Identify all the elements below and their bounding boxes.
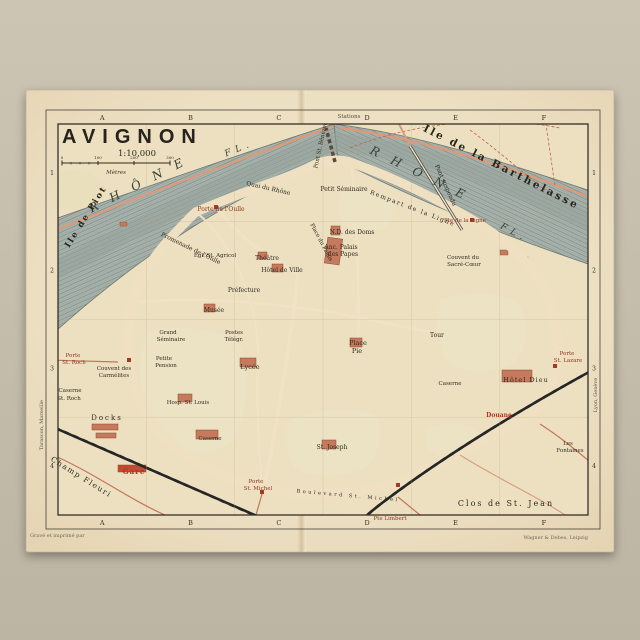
- map-label: Hôtel de Ville: [261, 267, 303, 274]
- map-label: Séminaire: [157, 336, 185, 343]
- map-label: Égl. St. Agricol: [194, 251, 237, 259]
- map-label: Caserne: [439, 381, 462, 387]
- map-label: Porte: [66, 353, 81, 359]
- grid-letter-top: F: [542, 114, 547, 122]
- map-canvas: AVIGNON 1:10,000 0100200300 Mètres R H Ô…: [0, 0, 640, 640]
- map-label: Place: [349, 339, 367, 347]
- grid-number-left: 3: [50, 365, 54, 372]
- map-label: Musée: [204, 307, 225, 314]
- map-label: Télégr.: [225, 336, 244, 343]
- map-label: N.D. des Doms: [330, 229, 375, 236]
- map-label: Lycée: [240, 363, 259, 371]
- map-title: AVIGNON: [62, 126, 203, 148]
- map-label: Couvent des: [97, 366, 132, 372]
- grid-number-right: 3: [592, 365, 596, 372]
- map-label: Pension: [155, 363, 177, 369]
- attribution-right: Wagner & Debes, Leipzig: [524, 535, 589, 541]
- grid-number-right: 2: [592, 268, 596, 275]
- grid-letter-bottom: C: [276, 519, 281, 527]
- map-label: Pie: [352, 347, 362, 355]
- map-label: Porte: [560, 351, 575, 357]
- map-label: Clos de St. Jean: [458, 499, 554, 508]
- map-label: Porte de l'Oulle: [197, 206, 245, 213]
- map-label: Petit Séminaire: [320, 186, 367, 193]
- map-label: Porte: [249, 479, 264, 485]
- map-label: Grand: [159, 330, 177, 336]
- grid-letter-top: A: [99, 114, 105, 122]
- grid-letter-bottom: F: [542, 519, 547, 527]
- grid-number-left: 2: [50, 268, 54, 275]
- attribution-left: Gravé et imprimé par: [30, 532, 85, 539]
- map-label: Couvent du: [447, 255, 479, 261]
- map-label: Tarascon, Marseille: [39, 400, 45, 450]
- grid-letter-bottom: A: [99, 519, 105, 527]
- grid-letter-bottom: D: [365, 519, 370, 527]
- map-label: Hosp. St. Louis: [167, 400, 210, 406]
- grid-letter-bottom: B: [188, 519, 193, 527]
- scale-tick: 100: [94, 155, 102, 160]
- map-label: Docks: [91, 414, 123, 422]
- grid-number-right: 1: [592, 170, 596, 177]
- map-label: Carmélites: [99, 372, 130, 379]
- map-label: Les: [563, 441, 573, 447]
- map-label: Gare: [123, 467, 146, 476]
- map-label: Petite: [156, 356, 172, 362]
- grid-letter-top: B: [188, 114, 193, 122]
- map-label: Pte de la Ligne: [444, 218, 486, 224]
- map-label: St. Joseph: [317, 444, 348, 451]
- map-label: St. Roch: [62, 360, 86, 366]
- map-label: St. Michel: [244, 486, 273, 492]
- map-label: Postes: [225, 330, 243, 336]
- scale-tick: 0: [61, 155, 64, 160]
- grid-letter-bottom: E: [453, 519, 458, 527]
- map-label: Sacré-Cœur: [447, 261, 481, 268]
- map-label: Tour: [430, 332, 444, 339]
- map-label: St. Roch: [57, 396, 81, 402]
- scale-unit-label: Mètres: [105, 169, 126, 176]
- scale-tick: 200: [130, 155, 138, 160]
- map-label: Fontaines: [556, 448, 583, 454]
- map-label: Hôtel Dieu: [503, 376, 549, 384]
- grid-letter-top: E: [453, 114, 458, 122]
- grid-number-left: 1: [50, 170, 54, 177]
- map-label: Caserne: [199, 436, 222, 442]
- grid-number-right: 4: [592, 463, 596, 470]
- map-label: Théâtre: [255, 255, 279, 262]
- map-label: Douane: [486, 412, 512, 419]
- photo-of-antique-map: AVIGNON 1:10,000 0100200300 Mètres R H Ô…: [0, 0, 640, 640]
- map-label: Préfecture: [228, 287, 261, 294]
- grid-number-left: 4: [50, 463, 54, 470]
- map-label: St. Lazare: [554, 358, 582, 364]
- map-label: Lyon, Genève: [592, 378, 599, 412]
- grid-letter-top: D: [365, 114, 370, 122]
- map-label: Pte Limbert: [373, 516, 407, 522]
- grid-letter-top: C: [276, 114, 281, 122]
- map-label: Stations: [338, 114, 361, 120]
- map-label: Caserne: [59, 388, 82, 394]
